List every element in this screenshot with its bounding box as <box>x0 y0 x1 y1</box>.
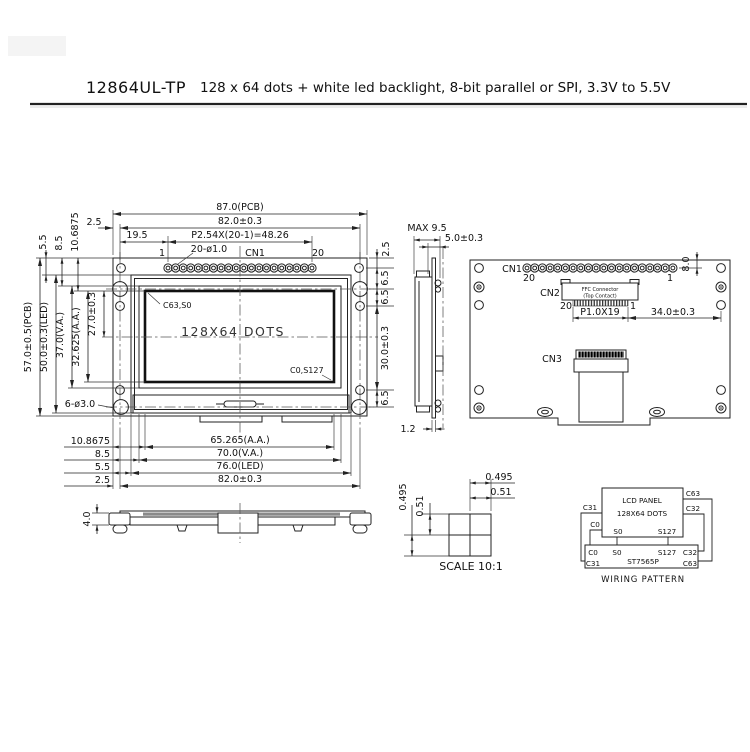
wire-c31-bottom: C31 <box>586 559 600 568</box>
dim-34: 34.0±0.3 <box>651 307 695 318</box>
dim-dot-pitch-h: 0.51 <box>490 487 511 498</box>
front-view: 87.0(PCB) 82.0±0.3 2.5 19.5 P2.54X(20-1)… <box>23 202 394 489</box>
wire-s127-top: S127 <box>658 527 676 536</box>
driver-ic-label: ST7565P <box>627 557 659 566</box>
wire-c63-bottom: C63 <box>683 559 697 568</box>
cn2-label: CN2 <box>540 288 560 299</box>
front-dims-bottom: 10.8675 8.5 5.5 2.5 65.265(A.A.) 70.0(V.… <box>64 414 360 489</box>
dim-pin-pitch: P2.54X(20-1)=48.26 <box>191 230 289 241</box>
ffc-contacts <box>573 300 628 306</box>
ffc-label-1: FFC Connector <box>582 287 620 293</box>
dim-pcb-height: 57.0±0.5(PCB) <box>23 302 34 373</box>
dim-width-82: 82.0±0.3 <box>218 216 262 227</box>
corner-label-br: C0,S127 <box>290 366 324 375</box>
wire-s127-bottom: S127 <box>658 548 676 557</box>
dot-detail: 0.495 0.51 0.495 0.51 SCALE 10:1 <box>398 472 515 573</box>
hole-callout-20: 20-ø1.0 <box>191 244 227 255</box>
wire-c63-top: C63 <box>686 489 700 498</box>
cn3-label: CN3 <box>542 354 562 365</box>
cn3-body <box>579 372 623 422</box>
dim-106875: 10.6875 <box>70 212 81 251</box>
datasheet-drawing: 12864UL-TP 128 x 64 dots + white led bac… <box>0 0 750 752</box>
dim-aa-width: 65.265(A.A.) <box>210 435 269 446</box>
cn1-pin20-label: 20 <box>523 273 535 284</box>
dim-offset-25-left: 2.5 <box>86 217 101 228</box>
wire-s0-top: S0 <box>613 527 623 536</box>
wire-c0-top: C0 <box>590 520 600 529</box>
dim-dot-width: 0.495 <box>485 472 512 483</box>
wire-c32-bottom: C32 <box>683 548 697 557</box>
front-dims-right: 2.5 6.5 6.5 30.0±0.3 6.5 <box>366 241 394 407</box>
cn1-pin1-label: 1 <box>667 273 673 284</box>
dim-cn2-pitch: P1.0X19 <box>580 307 619 318</box>
dim-offset-195: 19.5 <box>126 230 147 241</box>
bottom-dims: 4.0 <box>82 504 109 534</box>
dim-led-width: 76.0(LED) <box>216 461 263 472</box>
dim-va-height: 37.0(V.A.) <box>55 312 66 358</box>
cn2-pin1-label: 1 <box>630 301 636 312</box>
front-dims-top: 87.0(PCB) 82.0±0.3 2.5 19.5 P2.54X(20-1)… <box>86 202 367 264</box>
dim-25-right: 2.5 <box>381 241 392 256</box>
dim-pcb-thickness: 1.2 <box>400 424 415 435</box>
wiring-pattern-caption: WIRING PATTERN <box>601 575 685 585</box>
bottom-connector-block <box>218 513 258 533</box>
dim-aa-height: 32.625(A.A.) <box>71 307 82 366</box>
pin1-label: 1 <box>159 248 165 259</box>
dim-65-a: 6.5 <box>380 270 391 285</box>
ffc-label-2: (Top Contact) <box>583 294 616 300</box>
cn1-label-back: CN1 <box>502 264 522 275</box>
dim-25-bottom: 2.5 <box>95 475 110 486</box>
dim-pcb-width: 87.0(PCB) <box>216 202 263 213</box>
dim-85-bottom: 8.5 <box>95 449 110 460</box>
dim-pcb-width-bottom: 82.0±0.3 <box>218 474 262 485</box>
dim-max-thickness: MAX 9.5 <box>407 223 446 234</box>
bottom-view: 4.0 <box>82 503 371 543</box>
dim-50: 5.0±0.3 <box>445 233 483 244</box>
dim-dot-pitch-v: 0.51 <box>415 495 426 516</box>
corner-label-tl: C63,S0 <box>163 301 191 310</box>
scale-label: SCALE 10:1 <box>439 560 502 573</box>
dim-30: 30.0±0.3 <box>380 326 391 370</box>
header: 12864UL-TP 128 x 64 dots + white led bac… <box>8 36 747 107</box>
dim-85-top: 8.5 <box>54 235 65 250</box>
dim-65-c: 6.5 <box>380 390 391 405</box>
lcd-panel-label-1: LCD PANEL <box>622 496 662 505</box>
hole-callout-6: 6-ø3.0 <box>65 399 95 410</box>
page-title: 12864UL-TP <box>86 78 186 97</box>
cn2-pin20-label: 20 <box>560 301 572 312</box>
wire-c0-bottom: C0 <box>588 548 598 557</box>
pin20-label: 20 <box>312 248 324 259</box>
cn1-label-front: CN1 <box>245 248 265 259</box>
watermark <box>8 36 66 56</box>
side-connector <box>436 356 444 371</box>
dim-40: 4.0 <box>82 511 93 526</box>
dim-55-top: 5.5 <box>38 234 49 249</box>
dim-80-label: 8.0 <box>681 256 692 271</box>
dim-dot-height: 0.495 <box>398 483 409 510</box>
dim-65-b: 6.5 <box>380 289 391 304</box>
wiring-pattern: LCD PANEL 128X64 DOTS S0 S127 C31 C0 C63… <box>581 488 712 585</box>
lcd-panel-label-2: 128X64 DOTS <box>617 509 668 518</box>
display-resolution-label: 128X64 DOTS <box>181 324 285 339</box>
dim-led-height: 50.0±0.3(LED) <box>39 302 50 372</box>
dim-27: 27.0±0.3 <box>87 292 98 336</box>
dim-108675: 10.8675 <box>71 436 110 447</box>
wire-c31-top: C31 <box>583 503 597 512</box>
side-panel <box>415 277 432 406</box>
wire-c32-top: C32 <box>686 504 700 513</box>
dim-55-bottom: 5.5 <box>95 462 110 473</box>
back-view: CN1 20 1 8.0 FFC Connector (Top Contact)… <box>470 252 730 425</box>
page-subtitle: 128 x 64 dots + white led backlight, 8-b… <box>200 80 671 96</box>
cn3-contact-strip <box>578 352 624 358</box>
wire-s0-bottom: S0 <box>612 548 622 557</box>
dim-va-width: 70.0(V.A.) <box>217 448 263 459</box>
